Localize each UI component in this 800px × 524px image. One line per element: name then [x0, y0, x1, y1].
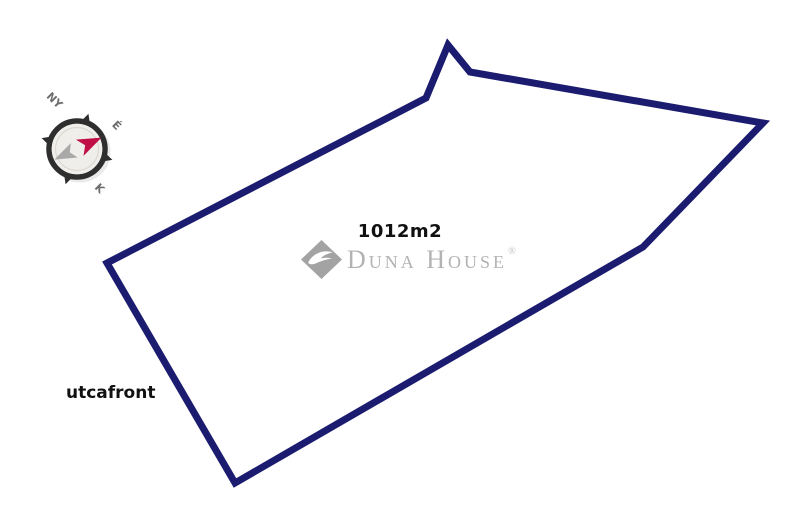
duna-house-logo-icon: [301, 240, 342, 279]
compass-label-east: K: [92, 181, 108, 197]
registered-mark: ®: [508, 246, 516, 257]
watermark-brand-text: Duna House: [347, 245, 507, 274]
street-front-label: utcafront: [66, 383, 155, 403]
watermark-brand: Duna House®: [347, 240, 516, 279]
area-label: 1012m2: [300, 221, 500, 242]
watermark: Duna House®: [301, 240, 516, 279]
compass-label-west: NY: [44, 90, 66, 112]
plot-sketch-canvas: Duna House® 1012m2 utcafront NY: [0, 0, 800, 524]
compass-rose: NY É K: [30, 80, 130, 200]
compass-label-north: É: [109, 118, 124, 133]
compass-face: [52, 124, 103, 175]
